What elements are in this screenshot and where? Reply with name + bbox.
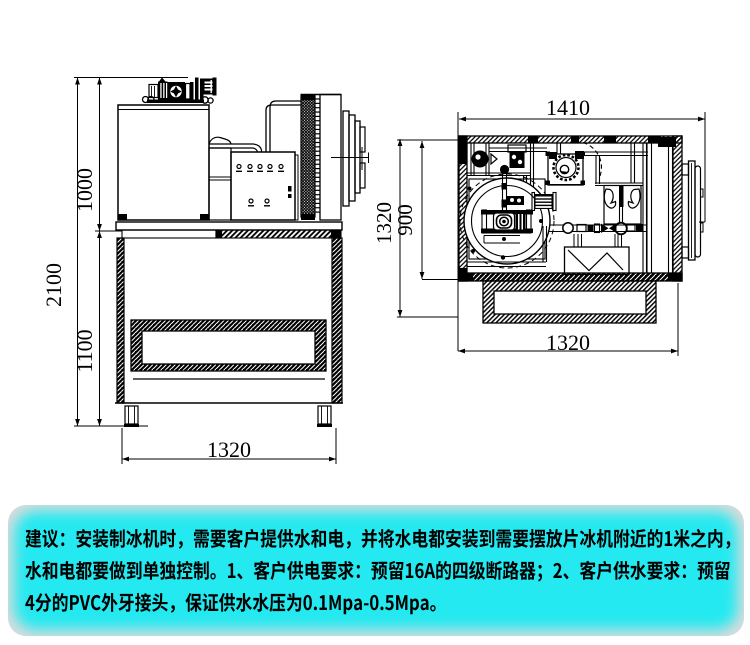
svg-text:2100: 2100 (41, 263, 66, 307)
svg-text:1000: 1000 (72, 168, 97, 212)
svg-text:1100: 1100 (72, 329, 97, 372)
svg-text:1320: 1320 (546, 330, 590, 355)
svg-text:1320: 1320 (207, 437, 251, 462)
svg-text:1410: 1410 (546, 95, 590, 120)
svg-text:900: 900 (393, 204, 417, 236)
